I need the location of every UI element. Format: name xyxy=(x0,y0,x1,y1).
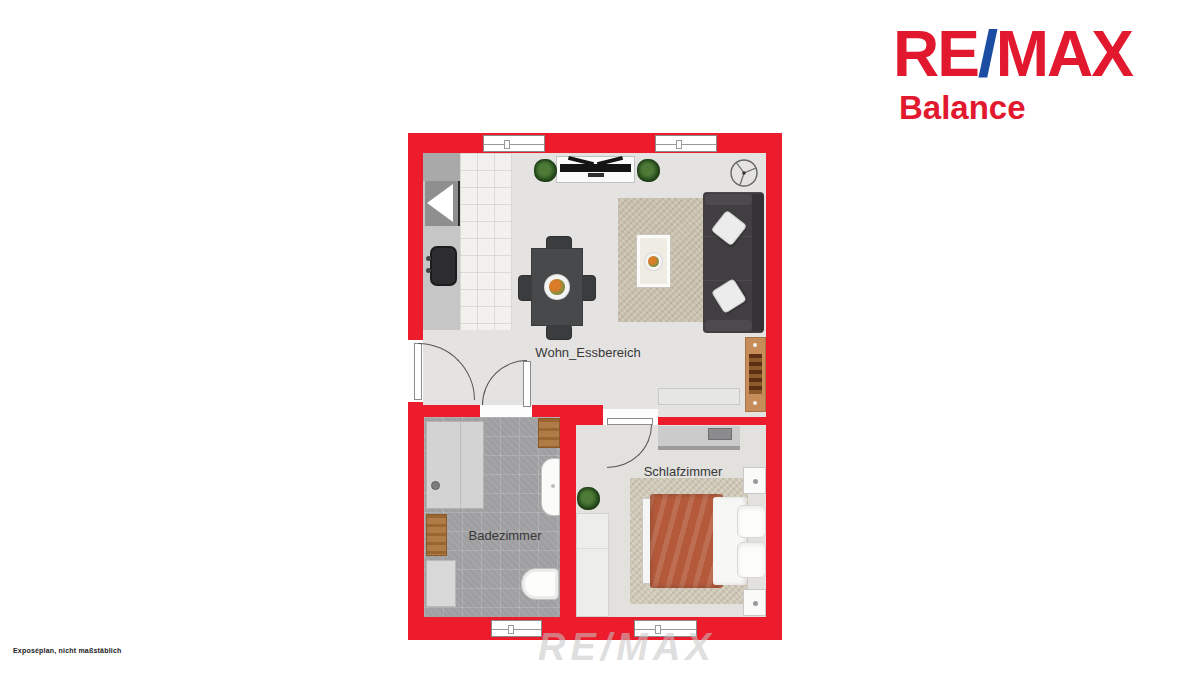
potted-plant-icon xyxy=(577,487,600,510)
dresser-drawers xyxy=(749,354,762,394)
washbasin xyxy=(541,458,560,516)
tv-icon xyxy=(560,164,631,172)
nightstand xyxy=(743,589,766,616)
stove-icon xyxy=(423,153,460,181)
sideboard xyxy=(658,388,740,405)
remax-logo: RE/MAX Balance xyxy=(893,22,1183,127)
logo-wordmark: RE/MAX xyxy=(893,22,1183,86)
window xyxy=(483,135,545,152)
dining-chair xyxy=(546,324,572,340)
dresser-knob-icon xyxy=(753,401,757,405)
fruit-bowl-icon xyxy=(645,253,662,270)
room-label-bathroom: Badezimmer xyxy=(469,528,542,543)
potted-plant-icon xyxy=(534,159,557,182)
bed-pillow xyxy=(737,505,766,538)
nightstand xyxy=(743,467,766,494)
laptop-icon xyxy=(708,428,732,440)
logo-slash-icon: / xyxy=(977,22,997,86)
logo-office-name: Balance xyxy=(893,89,1183,127)
room-label-bedroom: Schlafzimmer xyxy=(644,464,723,479)
remax-watermark: RE/MAX xyxy=(538,626,716,669)
sofa-armrest xyxy=(705,320,752,331)
fruit-bowl-icon xyxy=(545,275,569,299)
floorplan: Wohn_Essbereich Badezimmer Schlafzimmer xyxy=(408,133,782,640)
room-label-living-dining: Wohn_Essbereich xyxy=(535,345,640,360)
washing-machine xyxy=(426,560,456,607)
scale-disclaimer: Exposéplan, nicht maßstäblich xyxy=(13,647,122,654)
bathtub xyxy=(521,568,559,600)
wardrobe xyxy=(576,513,609,617)
sofa-backrest xyxy=(752,194,764,331)
shower xyxy=(426,421,484,509)
sofa-armrest xyxy=(705,194,752,205)
fridge-icon xyxy=(425,181,461,226)
shower-head-icon xyxy=(431,481,440,490)
tv-stand-icon xyxy=(588,173,604,177)
dresser-knob-icon xyxy=(753,343,757,347)
bedroom-door-leaf xyxy=(607,418,653,425)
window xyxy=(491,620,542,637)
kitchen-sink-icon xyxy=(430,246,457,286)
bath-mat xyxy=(426,514,447,556)
bed-pillow xyxy=(737,542,766,578)
logo-re: RE xyxy=(893,18,978,90)
potted-plant-icon xyxy=(637,159,660,182)
kitchen-tile-floor xyxy=(460,153,512,330)
logo-max: MAX xyxy=(996,18,1132,90)
window xyxy=(655,135,717,152)
bath-mat xyxy=(538,418,560,448)
ceiling-fan-icon xyxy=(729,158,759,188)
